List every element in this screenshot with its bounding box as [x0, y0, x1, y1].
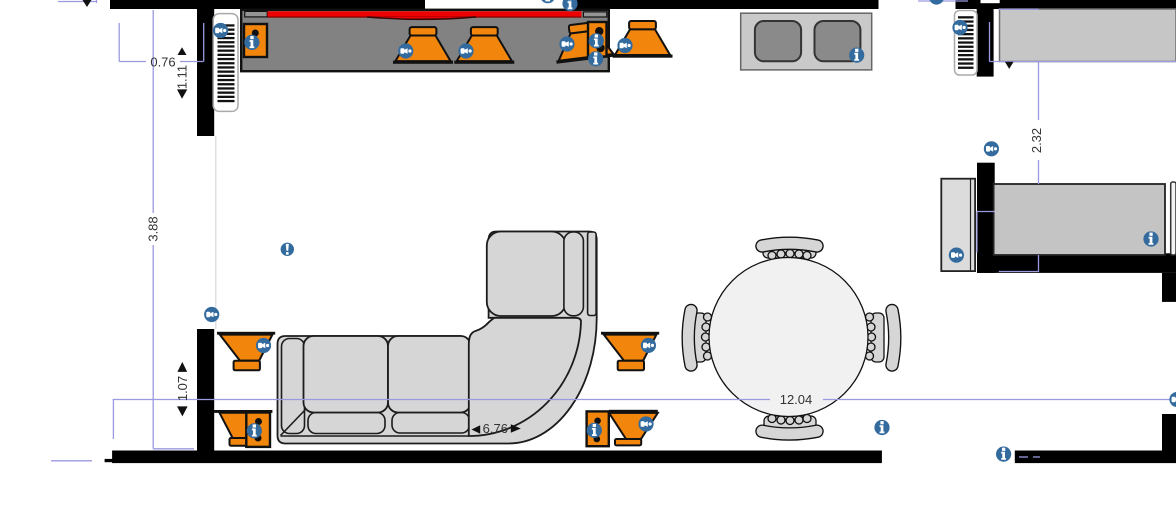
svg-text:1.11: 1.11: [174, 65, 189, 89]
svg-text:12.04: 12.04: [780, 392, 813, 407]
svg-text:1.07: 1.07: [175, 376, 190, 401]
svg-text:3.88: 3.88: [145, 216, 160, 241]
svg-text:6.76: 6.76: [483, 421, 508, 436]
svg-text:2.32: 2.32: [1029, 128, 1044, 153]
svg-text:0.76: 0.76: [150, 55, 175, 70]
